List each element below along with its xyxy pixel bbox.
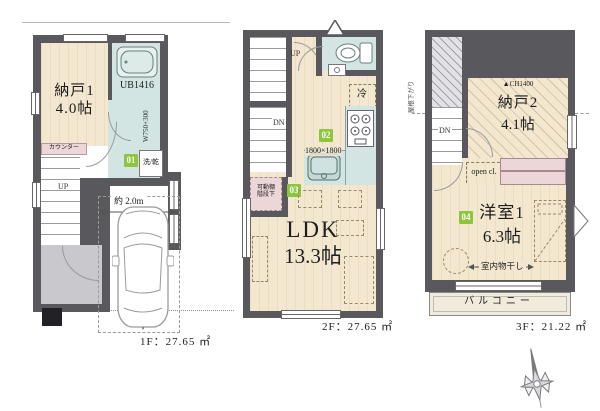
compass-icon bbox=[505, 342, 569, 410]
stairs-3f-hatched bbox=[432, 37, 462, 107]
floor-plan-sheet: 洗/乾 カウンター 納戸1 4.0帖 UB1416 W750+300 01 UP… bbox=[0, 0, 600, 411]
window-2f-bottom bbox=[281, 310, 341, 319]
stairs-3f bbox=[432, 107, 462, 165]
washer-label: 洗/乾 bbox=[139, 158, 163, 166]
bathtub-icon bbox=[116, 46, 158, 78]
plan-1f: 洗/乾 カウンター 納戸1 4.0帖 UB1416 W750+300 01 UP… bbox=[0, 0, 240, 411]
ldk-name: LDK bbox=[250, 216, 376, 244]
window-3f-balcony bbox=[455, 281, 542, 291]
dn-label-2f: DN bbox=[272, 118, 286, 128]
car-icon bbox=[112, 204, 174, 330]
hand-sink-icon bbox=[328, 64, 346, 76]
area-label-1f: 1F：27.65 ㎡ bbox=[140, 336, 211, 349]
furniture-outline bbox=[338, 190, 362, 208]
bed-outline bbox=[534, 200, 566, 262]
dn-label-3f: DN bbox=[438, 126, 452, 136]
window-2f-right bbox=[376, 208, 385, 250]
kitchen-dim-label: 1800×1800 bbox=[305, 146, 342, 156]
storage2-name: 納戸2 bbox=[468, 94, 568, 112]
ldk-size: 13.3帖 bbox=[250, 244, 376, 269]
storage1-name: 納戸1 bbox=[41, 82, 108, 100]
kitchen-sink-icon bbox=[307, 153, 341, 181]
storage1-size: 4.0帖 bbox=[41, 100, 108, 118]
window-2f-left bbox=[242, 198, 251, 258]
area-label-3f: 3F：21.22 ㎡ bbox=[516, 321, 587, 334]
ch-guide-right bbox=[575, 113, 589, 114]
stove-icon bbox=[347, 110, 374, 147]
stairs-1f bbox=[41, 157, 80, 245]
counter-label: カウンター bbox=[42, 145, 86, 152]
bath-label: UB1416 bbox=[112, 80, 162, 92]
site-boundary-top bbox=[22, 22, 230, 23]
up-label-1f: UP bbox=[58, 182, 68, 192]
window-1f-top-right bbox=[125, 34, 165, 42]
balcony-label: バルコニー bbox=[429, 296, 569, 308]
window-1f-left-upper bbox=[31, 92, 40, 115]
western1-size: 6.3帖 bbox=[470, 227, 534, 247]
stairs-2f-up bbox=[250, 37, 286, 101]
window-1f-left-lower bbox=[32, 182, 41, 208]
ch-note: ▲CH1400 bbox=[492, 80, 544, 88]
window-1f-top-left bbox=[63, 34, 108, 42]
furniture-outline bbox=[298, 190, 322, 208]
drying-label: 室内物干し bbox=[479, 261, 526, 271]
bath-width-note: W750+300 bbox=[142, 102, 150, 150]
stairs-2f-down bbox=[250, 107, 286, 172]
fridge-label: 冷 bbox=[350, 89, 374, 101]
storage1-label: 納戸1 4.0帖 bbox=[41, 82, 108, 118]
badge-01: 01 bbox=[124, 154, 138, 167]
closet-band bbox=[500, 158, 566, 185]
area-label-2f: 2F：27.65 ㎡ bbox=[322, 321, 393, 334]
shelf-line2: 階段下 bbox=[250, 192, 282, 199]
casement-window-icon bbox=[573, 204, 589, 238]
shelf-label: 可動棚 階段下 bbox=[250, 185, 282, 199]
open-closet-label: open cl. bbox=[467, 167, 501, 177]
badge-02: 02 bbox=[319, 129, 333, 142]
window-3f-right-upper bbox=[567, 115, 577, 149]
toilet-icon bbox=[334, 41, 374, 65]
vent-triangle-icon bbox=[326, 20, 344, 35]
porch-step bbox=[42, 308, 62, 326]
storage2-size: 4.1帖 bbox=[468, 116, 568, 134]
roof-note: 屋根下がり bbox=[408, 71, 416, 123]
hanging-circle bbox=[443, 248, 469, 274]
western1-name: 洋室1 bbox=[470, 203, 534, 223]
